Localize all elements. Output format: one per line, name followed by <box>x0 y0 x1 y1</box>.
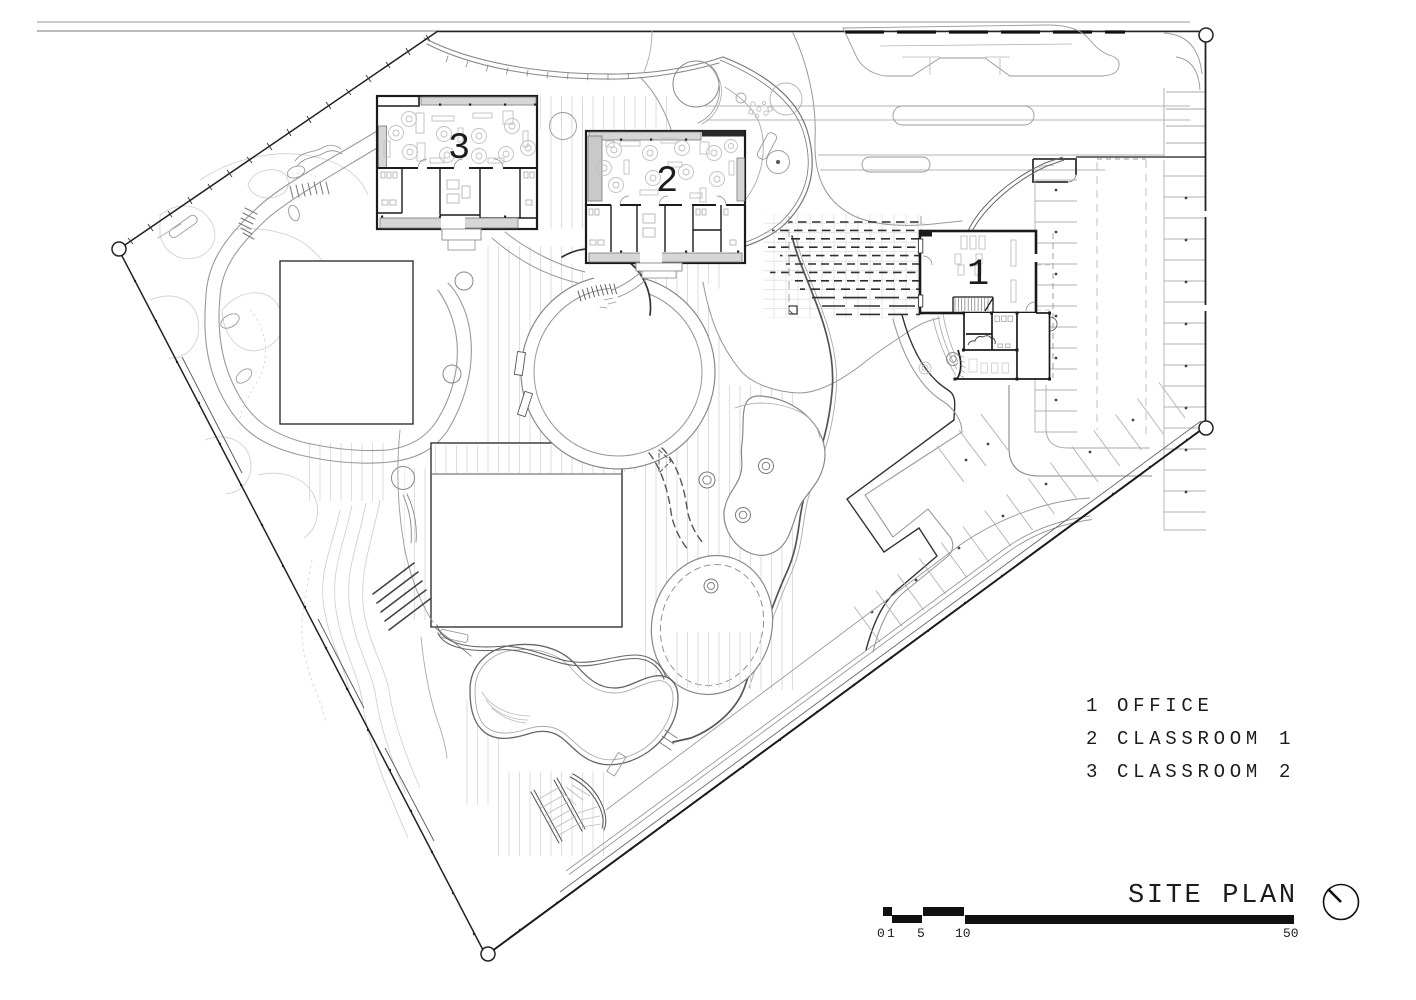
svg-text:2: 2 <box>1279 761 1295 783</box>
svg-text:50: 50 <box>1283 926 1299 941</box>
svg-text:10: 10 <box>955 926 971 941</box>
svg-text:3: 3 <box>1086 761 1102 783</box>
svg-text:1: 1 <box>1279 728 1295 750</box>
svg-text:2: 2 <box>1086 728 1102 750</box>
svg-text:OFFICE: OFFICE <box>1117 695 1214 717</box>
svg-text:SITE PLAN: SITE PLAN <box>1128 881 1298 911</box>
svg-text:5: 5 <box>917 926 925 941</box>
svg-text:1: 1 <box>967 254 989 296</box>
svg-text:1: 1 <box>887 926 895 941</box>
svg-text:2: 2 <box>656 161 678 203</box>
svg-text:3: 3 <box>448 128 470 170</box>
svg-text:1: 1 <box>1086 695 1102 717</box>
svg-text:0: 0 <box>877 926 885 941</box>
svg-text:CLASSROOM: CLASSROOM <box>1117 761 1262 783</box>
svg-text:CLASSROOM: CLASSROOM <box>1117 728 1262 750</box>
